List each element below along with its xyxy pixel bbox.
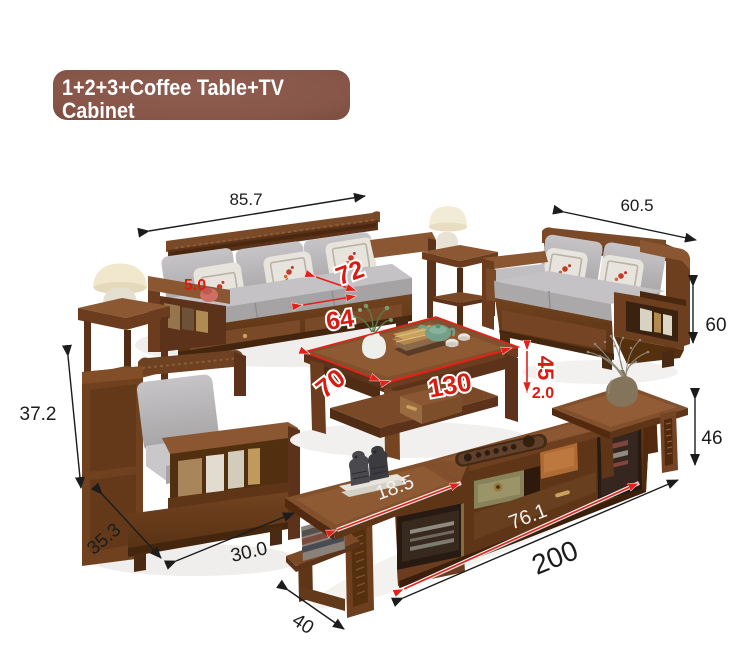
- svg-text:45: 45: [533, 356, 558, 380]
- svg-text:5.0: 5.0: [184, 277, 206, 294]
- svg-text:37.2: 37.2: [20, 404, 57, 425]
- svg-text:64: 64: [324, 304, 356, 336]
- svg-text:46: 46: [701, 428, 722, 449]
- svg-text:2.0: 2.0: [532, 385, 554, 402]
- svg-text:60: 60: [705, 315, 726, 336]
- svg-text:85.7: 85.7: [229, 190, 262, 209]
- svg-text:60.5: 60.5: [620, 196, 653, 215]
